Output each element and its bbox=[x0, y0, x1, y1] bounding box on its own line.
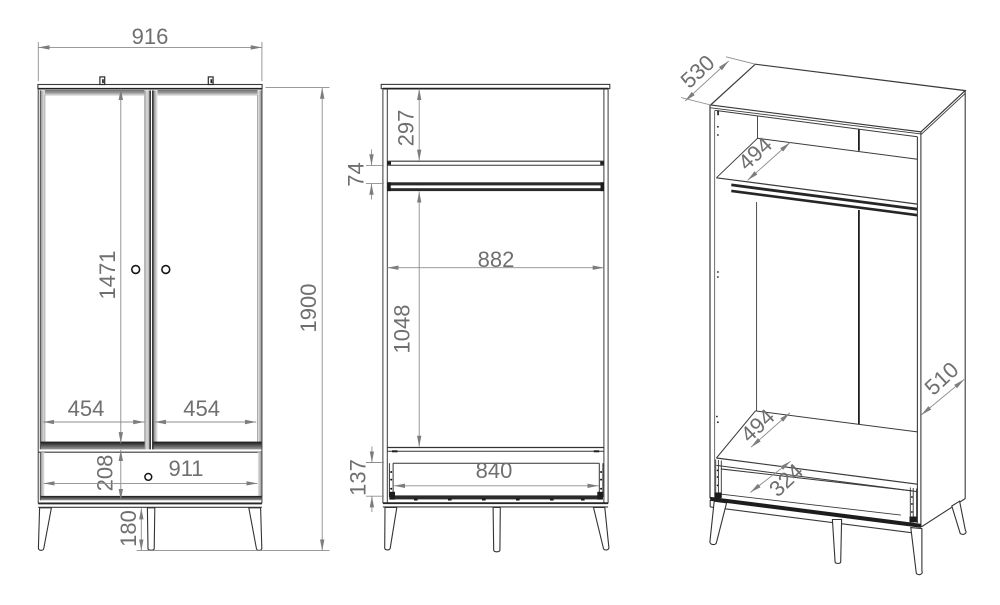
svg-text:137: 137 bbox=[346, 459, 371, 496]
svg-text:1048: 1048 bbox=[390, 305, 415, 354]
svg-text:840: 840 bbox=[476, 458, 513, 483]
svg-text:1471: 1471 bbox=[95, 251, 120, 300]
svg-text:911: 911 bbox=[168, 456, 203, 481]
svg-text:882: 882 bbox=[478, 247, 515, 272]
svg-text:74: 74 bbox=[344, 162, 369, 186]
svg-text:1900: 1900 bbox=[296, 284, 321, 333]
svg-text:530: 530 bbox=[676, 50, 720, 93]
svg-text:454: 454 bbox=[68, 396, 105, 421]
svg-text:454: 454 bbox=[183, 396, 220, 421]
svg-text:297: 297 bbox=[394, 110, 419, 147]
svg-text:494: 494 bbox=[733, 132, 777, 175]
svg-text:208: 208 bbox=[93, 455, 118, 492]
svg-text:494: 494 bbox=[736, 404, 780, 447]
svg-text:180: 180 bbox=[116, 510, 141, 547]
svg-text:510: 510 bbox=[920, 357, 964, 400]
svg-text:916: 916 bbox=[132, 24, 169, 49]
